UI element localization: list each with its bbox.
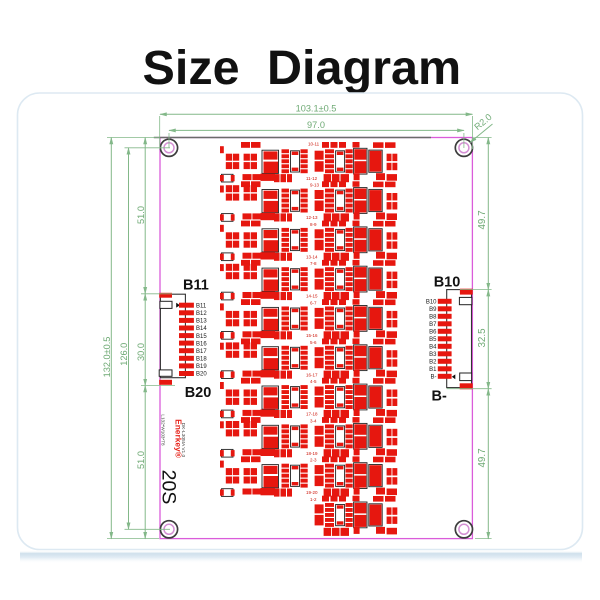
svg-text:B18: B18 [196, 357, 207, 363]
svg-text:14-15: 14-15 [306, 294, 318, 299]
svg-text:7-8: 7-8 [310, 261, 317, 266]
svg-text:18-19: 18-19 [306, 451, 318, 456]
svg-text:17-18: 17-18 [306, 412, 318, 417]
svg-text:B1: B1 [429, 367, 437, 373]
svg-text:6-7: 6-7 [310, 301, 317, 306]
svg-text:DK-L305tA V1.0: DK-L305tA V1.0 [180, 423, 186, 458]
svg-text:B11: B11 [183, 278, 209, 294]
svg-text:126.0: 126.0 [119, 343, 129, 366]
svg-text:32.5: 32.5 [477, 328, 488, 348]
svg-text:9-13: 9-13 [310, 183, 320, 188]
svg-text:51.0: 51.0 [136, 451, 146, 469]
svg-text:Diagram: Diagram [267, 41, 461, 95]
svg-text:B4: B4 [429, 345, 437, 351]
svg-text:B7: B7 [429, 322, 437, 328]
svg-text:L132*W103*T8: L132*W103*T8 [161, 414, 166, 446]
svg-text:4-5: 4-5 [310, 379, 317, 384]
svg-text:8-9: 8-9 [310, 222, 317, 227]
svg-text:B20: B20 [196, 372, 207, 378]
svg-text:11-12: 11-12 [306, 176, 318, 181]
svg-text:20S: 20S [158, 470, 180, 505]
svg-text:51.0: 51.0 [136, 206, 146, 224]
svg-text:B19: B19 [196, 364, 207, 370]
svg-text:5-6: 5-6 [310, 340, 317, 345]
svg-text:B5: B5 [429, 337, 437, 343]
svg-text:12-13: 12-13 [306, 215, 318, 220]
svg-text:16-17: 16-17 [306, 372, 318, 377]
svg-text:B17: B17 [196, 349, 207, 355]
svg-text:3-4: 3-4 [310, 418, 317, 423]
svg-text:B-: B- [431, 375, 437, 381]
svg-text:B12: B12 [196, 311, 207, 317]
svg-text:10-11: 10-11 [308, 142, 320, 147]
svg-text:B3: B3 [429, 352, 437, 358]
svg-text:2-3: 2-3 [310, 458, 317, 463]
svg-text:B-: B- [432, 388, 447, 404]
svg-text:15-16: 15-16 [306, 333, 318, 338]
svg-text:B6: B6 [429, 330, 437, 336]
svg-text:B10: B10 [426, 300, 437, 306]
svg-text:B2: B2 [429, 360, 437, 366]
svg-text:B10: B10 [434, 274, 461, 290]
svg-text:13-14: 13-14 [306, 254, 318, 259]
svg-text:B14: B14 [196, 326, 207, 332]
svg-text:49.7: 49.7 [477, 448, 488, 467]
svg-text:97.0: 97.0 [307, 120, 325, 130]
svg-text:Size: Size [143, 41, 240, 95]
svg-text:1-2: 1-2 [310, 497, 317, 502]
svg-text:103.1±0.5: 103.1±0.5 [296, 104, 337, 114]
svg-text:B9: B9 [429, 307, 437, 313]
svg-text:B20: B20 [185, 385, 212, 401]
svg-text:B16: B16 [196, 341, 207, 347]
svg-text:30.0: 30.0 [136, 343, 146, 361]
svg-text:132.0±0.5: 132.0±0.5 [102, 337, 112, 378]
svg-text:B8: B8 [429, 315, 437, 321]
svg-text:B11: B11 [196, 303, 207, 309]
svg-text:B15: B15 [196, 334, 207, 340]
svg-text:49.7: 49.7 [477, 210, 488, 229]
svg-text:B13: B13 [196, 319, 207, 325]
svg-text:19-20: 19-20 [306, 490, 318, 495]
